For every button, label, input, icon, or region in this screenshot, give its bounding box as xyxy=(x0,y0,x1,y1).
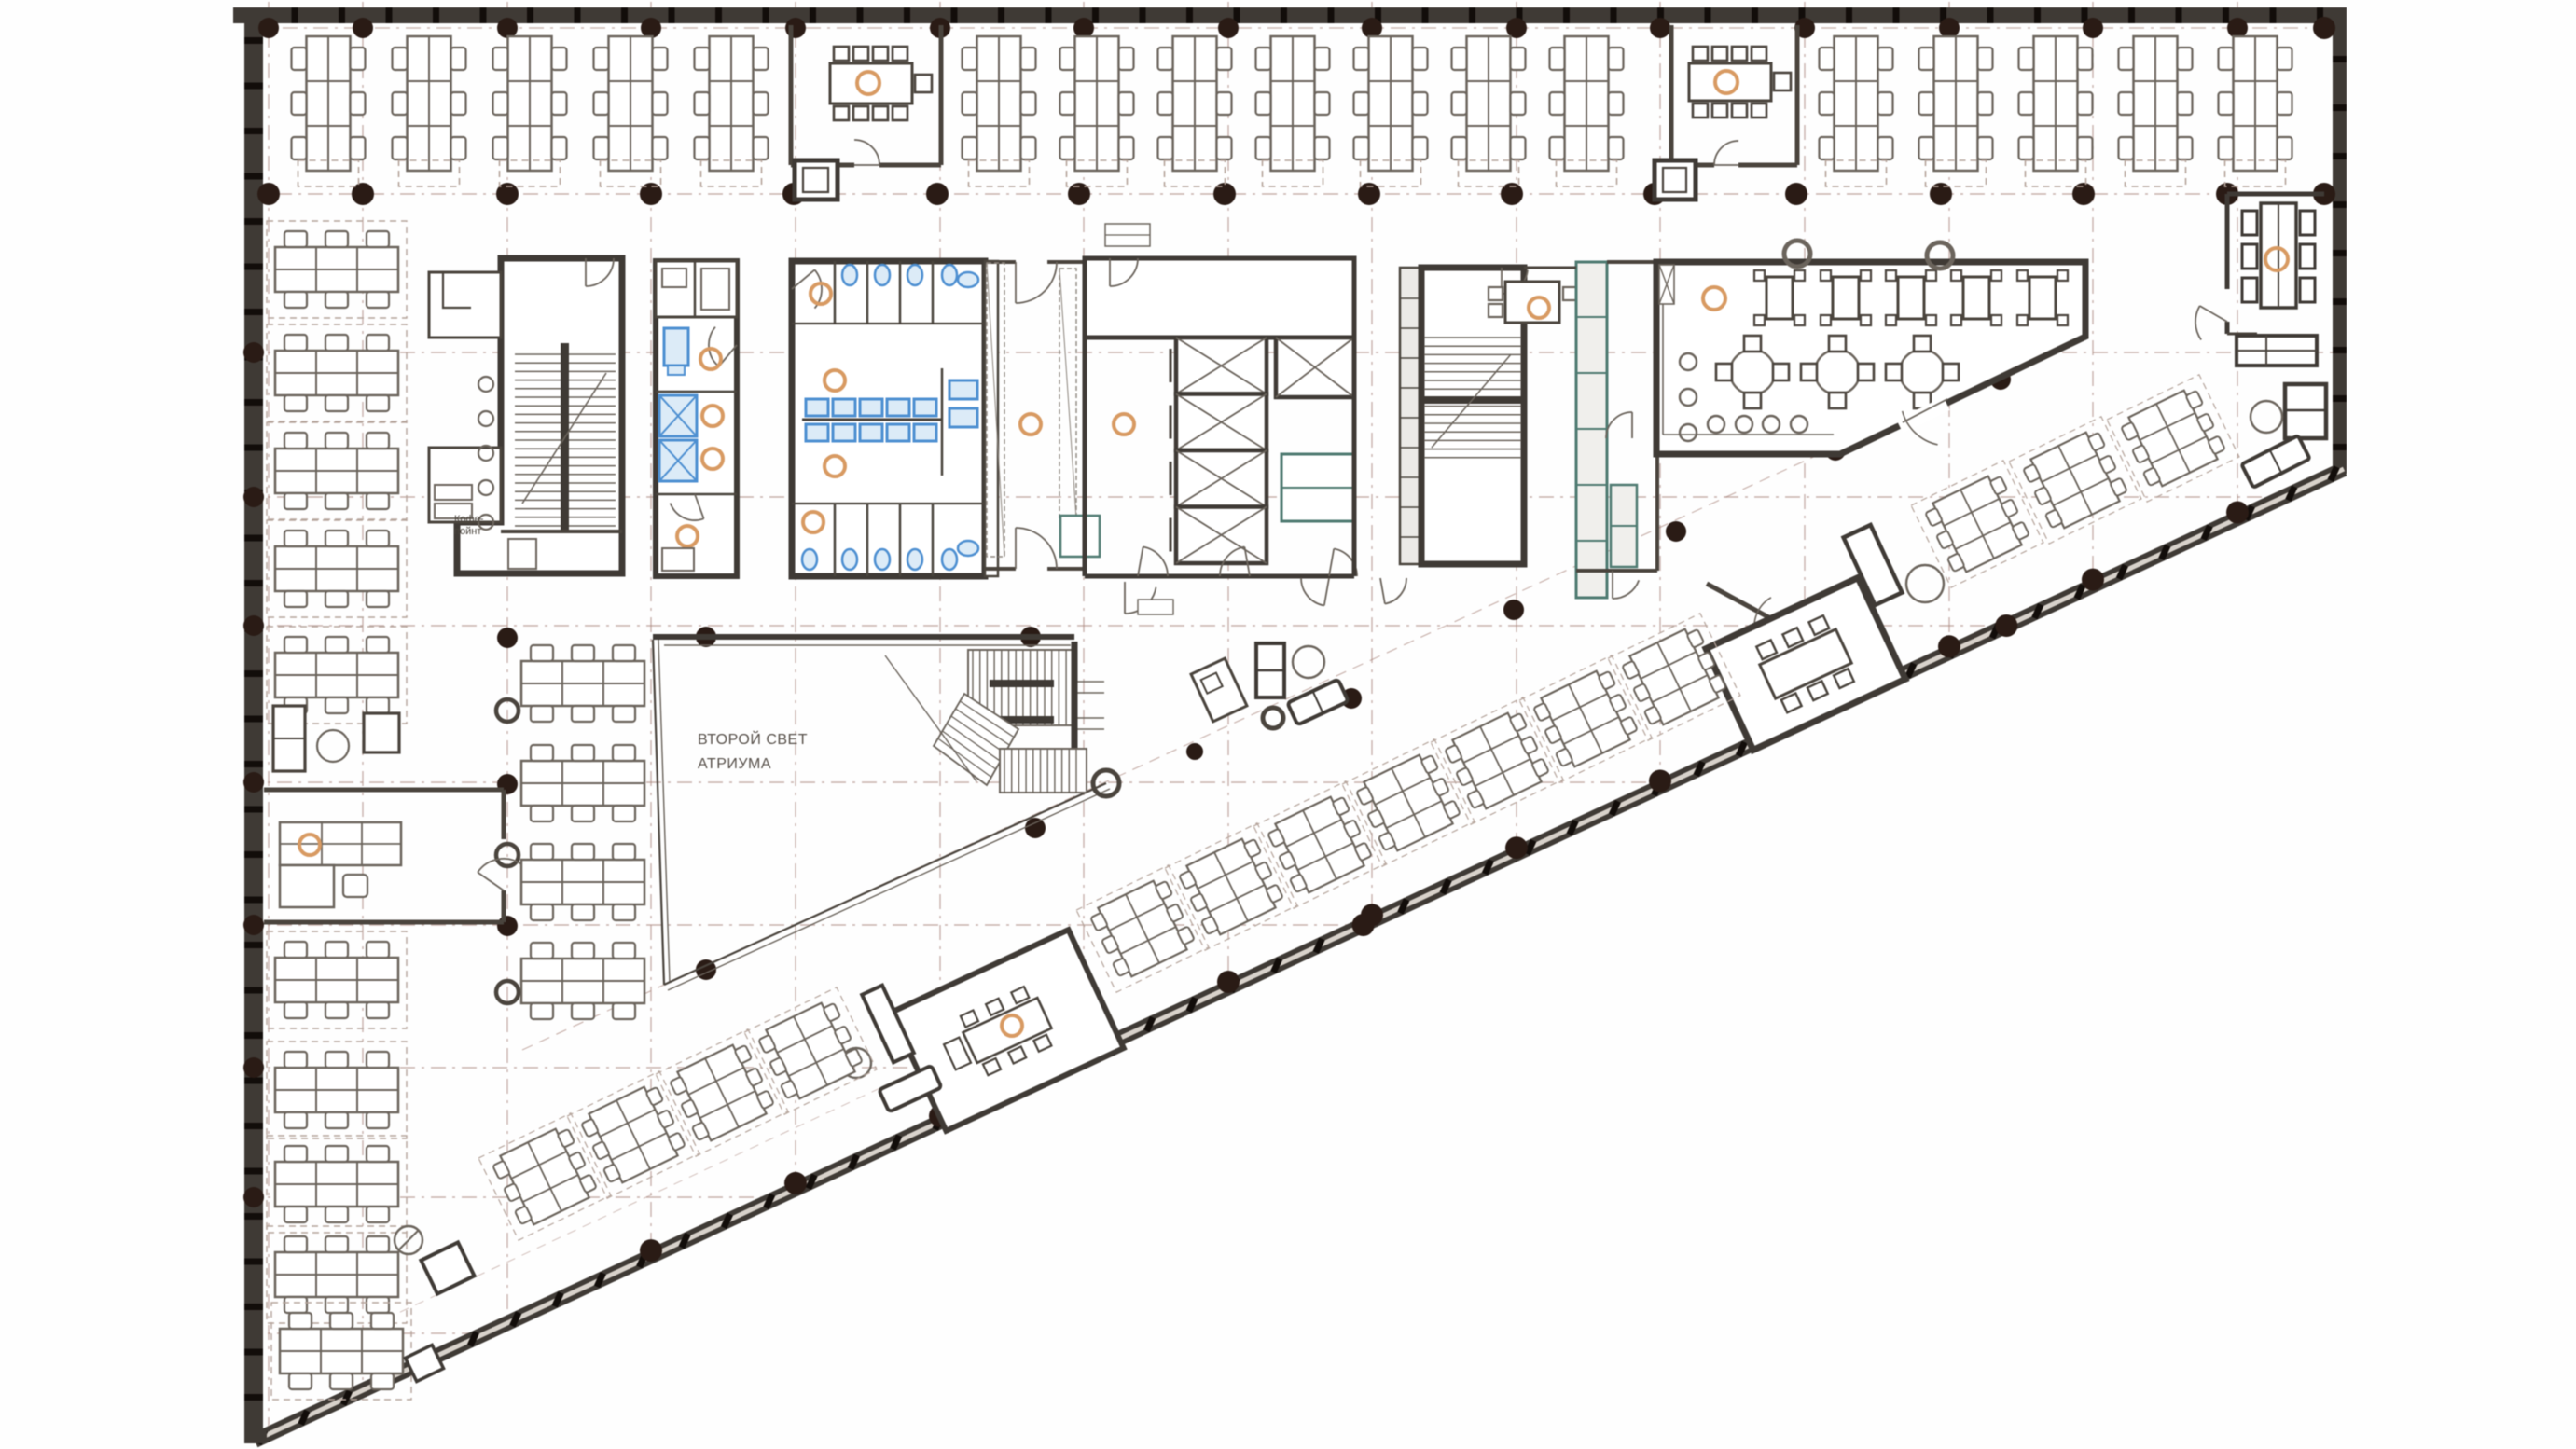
svg-text:АТРИУМА: АТРИУМА xyxy=(698,756,771,772)
svg-text:пойнт: пойнт xyxy=(454,526,481,537)
svg-text:ВТОРОЙ СВЕТ: ВТОРОЙ СВЕТ xyxy=(698,730,808,748)
svg-text:Кофе-: Кофе- xyxy=(454,514,484,525)
